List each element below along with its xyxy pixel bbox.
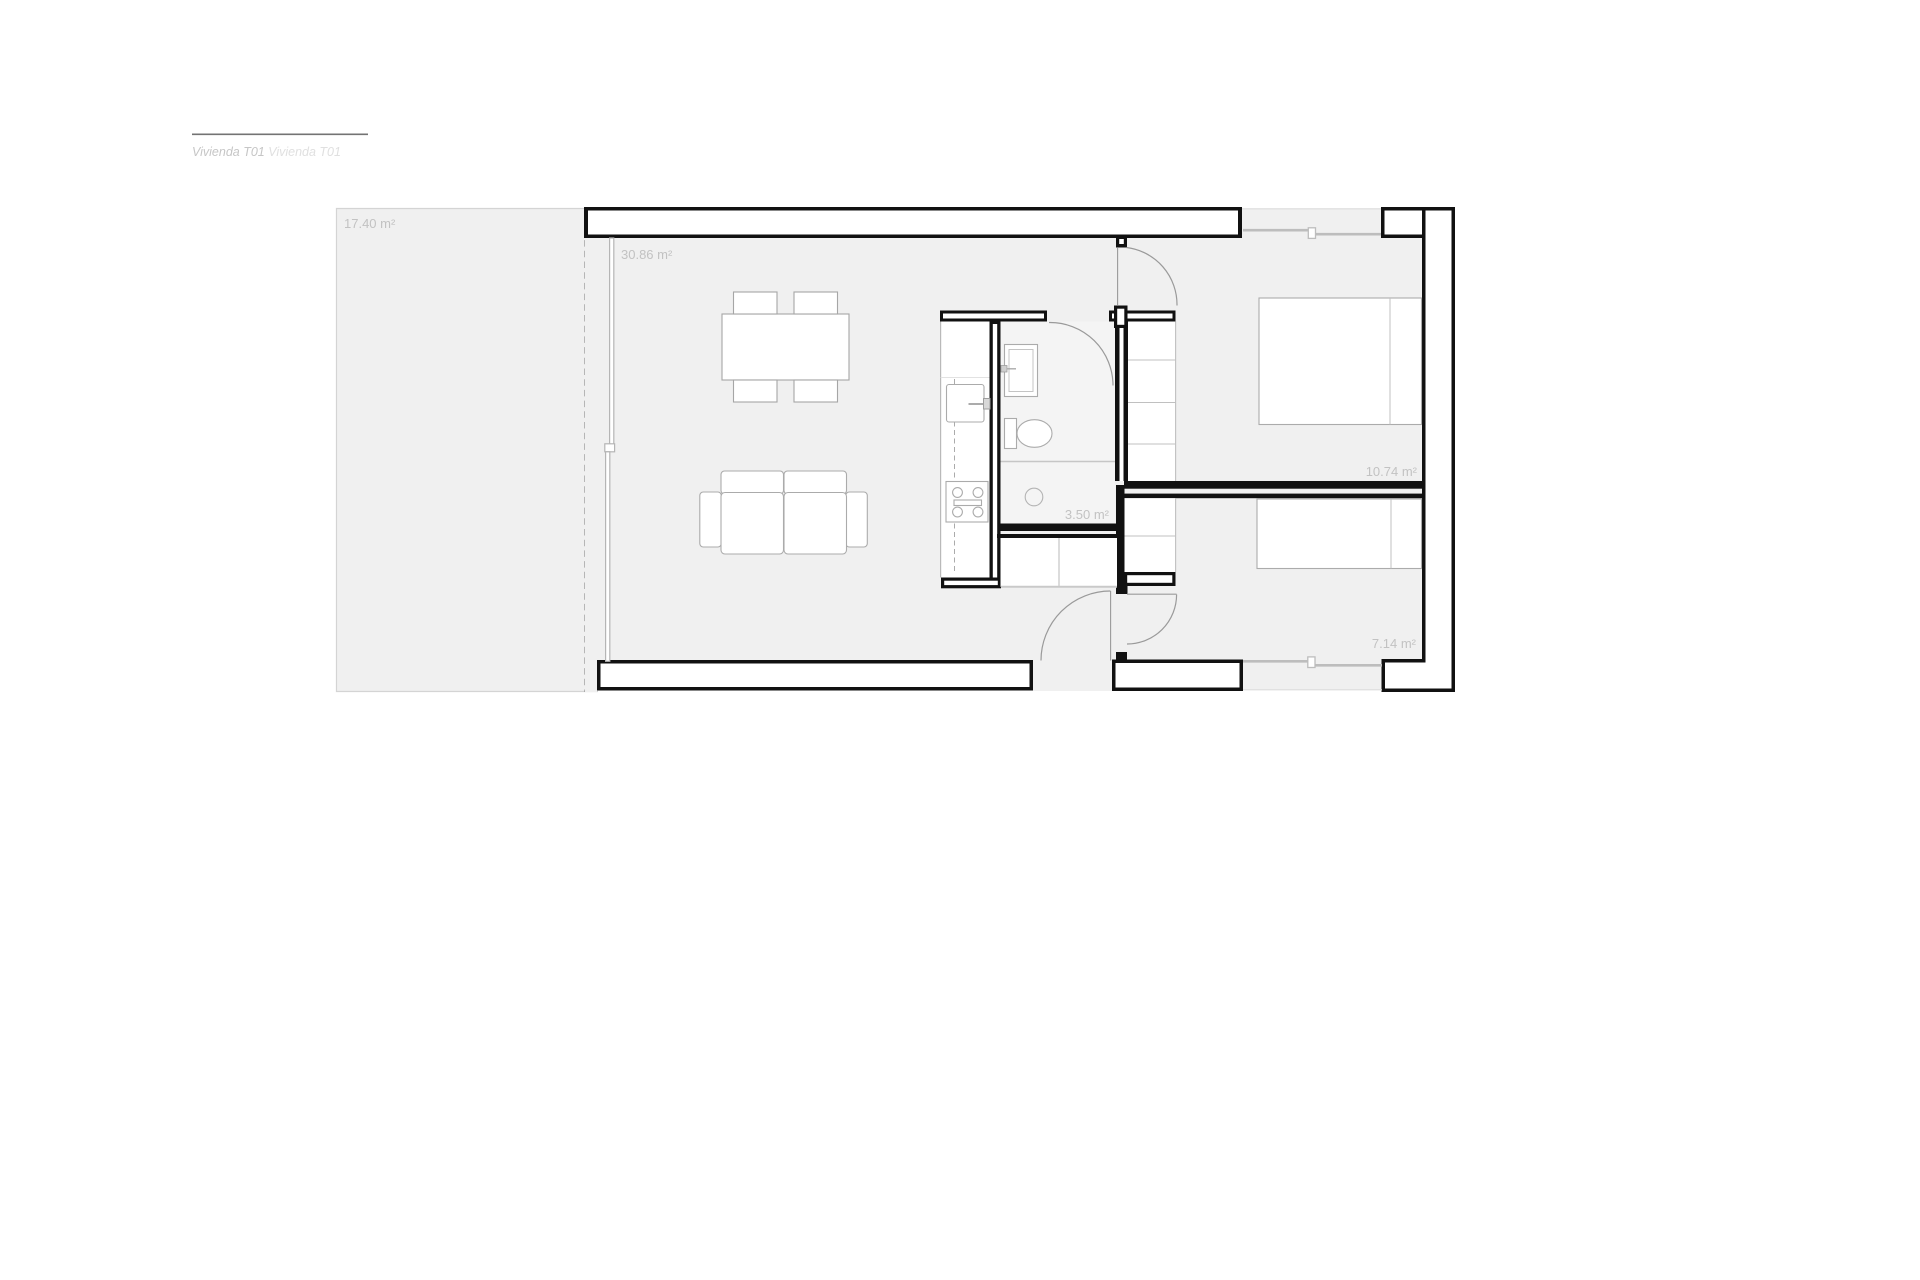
svg-text:17.40 m²: 17.40 m² [344,216,396,231]
svg-text:Vivienda T01 Vivienda T01: Vivienda T01 Vivienda T01 [192,145,341,159]
svg-text:30.86 m²: 30.86 m² [621,247,673,262]
svg-text:7.14 m²: 7.14 m² [1372,636,1417,651]
svg-text:10.74 m²: 10.74 m² [1366,464,1418,479]
svg-text:3.50 m²: 3.50 m² [1065,507,1110,522]
